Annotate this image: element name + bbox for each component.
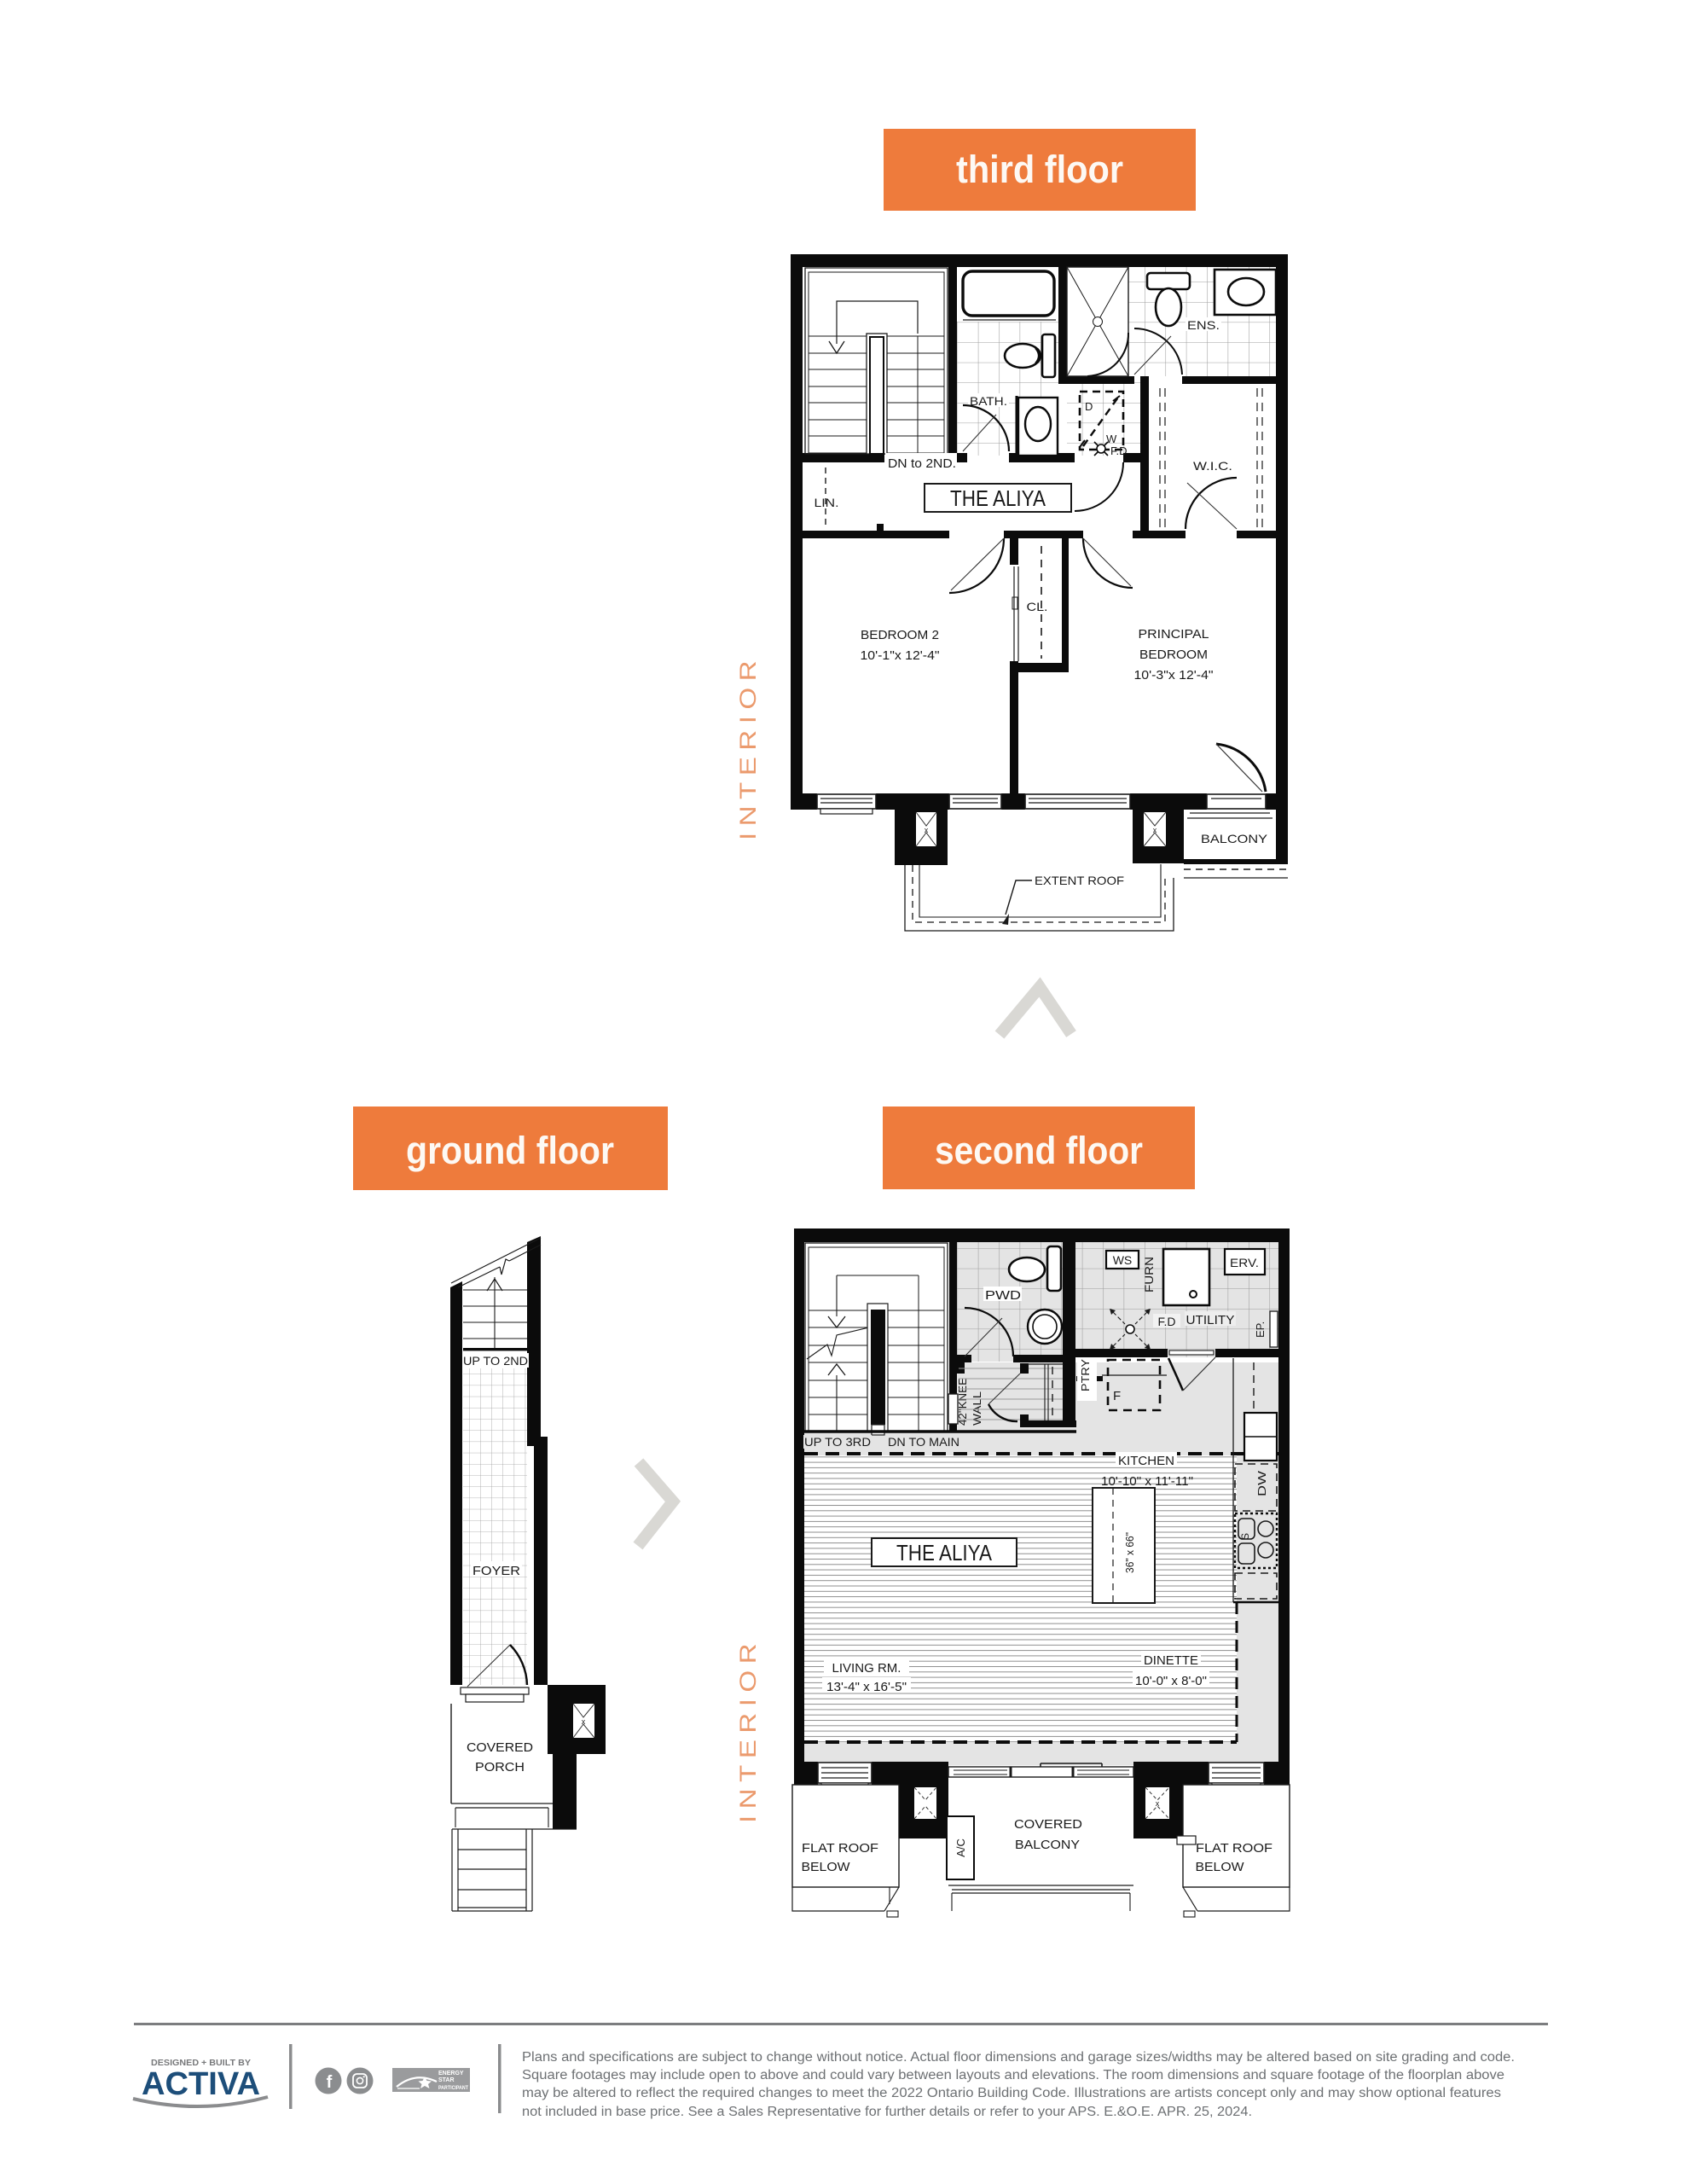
svg-text:PRINCIPAL: PRINCIPAL	[1139, 627, 1209, 642]
svg-text:36" x 66": 36" x 66"	[1123, 1532, 1136, 1573]
svg-text:ENERGY: ENERGY	[438, 2071, 464, 2077]
svg-text:ground floor: ground floor	[406, 1129, 614, 1172]
svg-text:10'-3"x 12'-4": 10'-3"x 12'-4"	[1134, 668, 1214, 682]
svg-text:CL.: CL.	[1027, 600, 1048, 613]
svg-text:second floor: second floor	[935, 1129, 1143, 1172]
svg-text:STAR: STAR	[438, 2077, 455, 2083]
svg-text:BATH.: BATH.	[970, 394, 1007, 408]
svg-text:LIVING RM.: LIVING RM.	[832, 1661, 901, 1676]
svg-text:f: f	[327, 2073, 333, 2092]
svg-text:WALL: WALL	[971, 1391, 983, 1426]
svg-text:F.D: F.D	[1158, 1315, 1176, 1328]
svg-text:COVERED: COVERED	[1014, 1817, 1082, 1832]
svg-text:COVERED: COVERED	[467, 1740, 533, 1755]
svg-text:EXTENT ROOF: EXTENT ROOF	[1035, 874, 1124, 887]
svg-text:UP TO 2ND: UP TO 2ND	[463, 1354, 528, 1368]
svg-text:x: x	[1153, 826, 1157, 834]
svg-text:PWD: PWD	[985, 1288, 1021, 1303]
svg-text:DINETTE: DINETTE	[1144, 1653, 1198, 1668]
svg-text:42"KNEE: 42"KNEE	[956, 1378, 969, 1426]
svg-text:EP.: EP.	[1254, 1321, 1267, 1338]
svg-text:UTILITY: UTILITY	[1186, 1313, 1235, 1327]
svg-text:W.I.C.: W.I.C.	[1193, 459, 1232, 473]
svg-text:THE ALIYA: THE ALIYA	[896, 1540, 993, 1565]
svg-text:x: x	[925, 826, 929, 834]
svg-text:DN to 2ND.: DN to 2ND.	[888, 456, 956, 471]
svg-text:ACTIVA: ACTIVA	[142, 2066, 260, 2102]
svg-text:FURN: FURN	[1142, 1257, 1156, 1292]
svg-text:WS: WS	[1113, 1253, 1133, 1267]
svg-text:Plans and specifications are s: Plans and specifications are subject to …	[522, 2050, 1515, 2065]
svg-text:10'-10" x 11'-11": 10'-10" x 11'-11"	[1101, 1474, 1193, 1489]
svg-text:BELOW: BELOW	[1196, 1860, 1245, 1874]
svg-text:10'-0" x 8'-0": 10'-0" x 8'-0"	[1135, 1674, 1207, 1688]
svg-text:x: x	[1156, 1799, 1160, 1808]
svg-text:ERV.: ERV.	[1230, 1256, 1259, 1269]
svg-text:BALCONY: BALCONY	[1201, 832, 1268, 845]
svg-text:INTERIOR: INTERIOR	[735, 1637, 761, 1823]
svg-text:may be altered to reflect the: may be altered to reflect the required c…	[522, 2086, 1501, 2100]
svg-text:LIN.: LIN.	[815, 496, 839, 509]
svg-text:S: S	[1239, 1533, 1251, 1540]
svg-text:FLAT ROOF: FLAT ROOF	[802, 1841, 878, 1856]
svg-text:A/C: A/C	[954, 1838, 967, 1857]
svg-text:third floor: third floor	[956, 148, 1123, 191]
svg-text:UP TO 3RD: UP TO 3RD	[804, 1435, 871, 1449]
svg-text:PORCH: PORCH	[475, 1760, 525, 1774]
svg-text:not included in base price. Se: not included in base price. See a Sales …	[522, 2105, 1252, 2119]
svg-text:10'-1"x 12'-4": 10'-1"x 12'-4"	[861, 648, 940, 663]
svg-text:F: F	[1113, 1389, 1121, 1403]
svg-text:PTRY: PTRY	[1079, 1359, 1092, 1391]
svg-text:Square footages may include op: Square footages may include open to abov…	[522, 2068, 1504, 2082]
svg-text:BELOW: BELOW	[802, 1860, 851, 1874]
svg-text:x: x	[582, 1717, 586, 1726]
svg-text:BEDROOM: BEDROOM	[1139, 648, 1208, 662]
svg-text:DW: DW	[1255, 1470, 1268, 1496]
svg-text:F.D: F.D	[1110, 444, 1128, 457]
svg-text:ENS.: ENS.	[1187, 318, 1220, 332]
svg-text:INTERIOR: INTERIOR	[735, 654, 761, 840]
svg-text:KITCHEN: KITCHEN	[1118, 1454, 1174, 1468]
svg-text:FLAT ROOF: FLAT ROOF	[1196, 1841, 1272, 1856]
svg-text:BEDROOM 2: BEDROOM 2	[861, 628, 939, 642]
svg-text:PARTICIPANT: PARTICIPANT	[438, 2085, 468, 2091]
svg-text:W: W	[1106, 433, 1117, 445]
svg-text:DN TO MAIN: DN TO MAIN	[888, 1435, 959, 1449]
svg-text:13'-4" x 16'-5": 13'-4" x 16'-5"	[826, 1680, 907, 1694]
svg-text:FOYER: FOYER	[472, 1564, 520, 1578]
svg-text:D: D	[1085, 400, 1093, 413]
svg-text:BALCONY: BALCONY	[1015, 1838, 1080, 1852]
svg-text:THE ALIYA: THE ALIYA	[950, 485, 1046, 511]
